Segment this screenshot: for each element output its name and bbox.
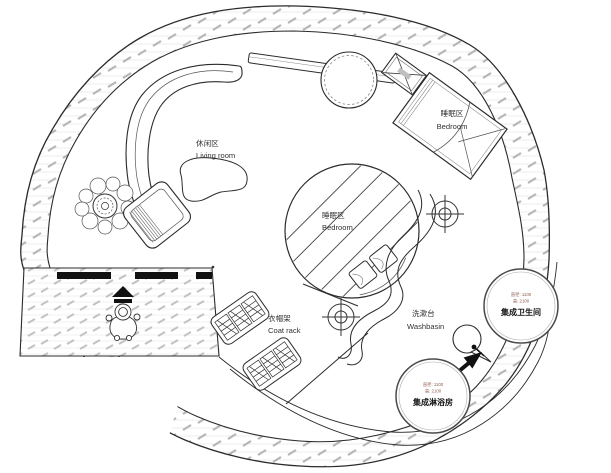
bathroom-pod: 直径: 1100 高: 2100 集成卫生间 (484, 269, 558, 343)
potted-plant-icon (75, 177, 135, 234)
coat-rack-label-zh: 衣帽架 (268, 313, 291, 323)
coat-rack-zone: 衣帽架 Coat rack (209, 289, 304, 392)
bathroom-pod-dim1: 直径: 1100 (511, 291, 532, 297)
coat-rack-label-en: Coat rack (268, 326, 301, 335)
wall-opening-mask (14, 357, 192, 473)
reference-dot (212, 266, 215, 269)
shower-pod-dim1: 直径: 1100 (423, 381, 444, 387)
washbasin-label-en: Washbasin (407, 322, 444, 331)
coffee-table (180, 158, 247, 202)
bathroom-pod-dim2: 高: 2100 (513, 298, 530, 305)
shower-pod-label: 集成淋浴房 (412, 397, 453, 407)
partition-line-bath (286, 333, 368, 404)
round-table (321, 52, 377, 108)
shower-pod-dim2: 高: 2100 (425, 388, 442, 395)
target-marker-icon (426, 195, 464, 233)
target-marker-icon (322, 298, 360, 336)
shower-pod: 直径: 1100 高: 2100 集成淋浴房 (396, 359, 470, 433)
living-room-label-zh: 休闲区 (196, 138, 219, 148)
living-room-label-en: Living room (196, 151, 235, 160)
upper-bedroom-label-en: Bedroom (437, 122, 468, 131)
bathroom-pod-label: 集成卫生间 (500, 307, 541, 317)
floor-plan: 休闲区 Living room 睡眠区 Bedroom (0, 0, 611, 473)
center-bedroom-label-en: Bedroom (322, 223, 353, 232)
washbasin-label-zh: 洗漱台 (412, 308, 435, 318)
center-bedroom-label-zh: 睡眠区 (322, 211, 345, 220)
floor-plan-drawing: 休闲区 Living room 睡眠区 Bedroom (0, 0, 611, 473)
upper-bedroom-label-zh: 睡眠区 (441, 109, 464, 118)
entrance-deck (20, 268, 219, 356)
